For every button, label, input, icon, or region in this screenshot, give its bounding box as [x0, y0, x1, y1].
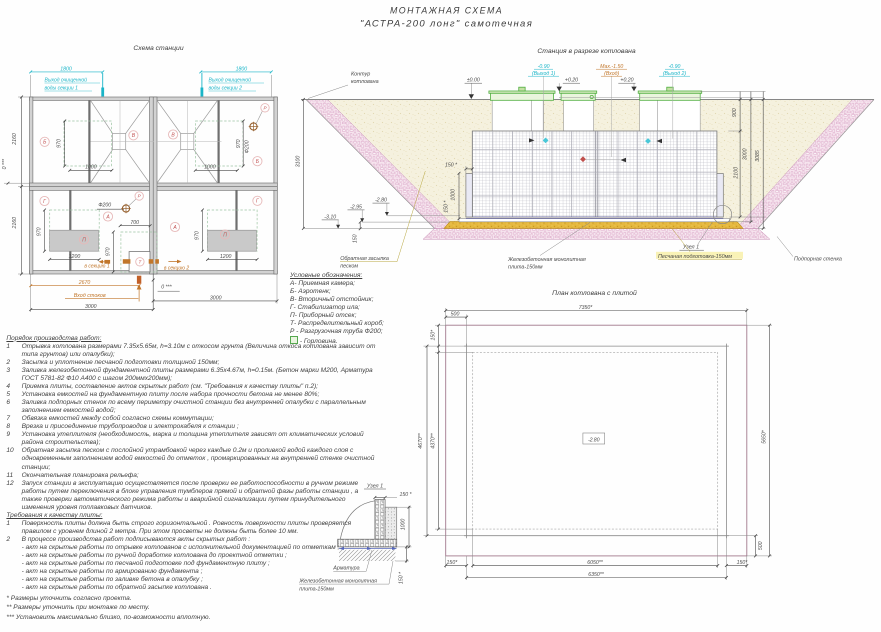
svg-text:План котлована с плитой: План котлована с плитой — [552, 289, 637, 297]
svg-text:Песчаная подготовка-150мм: Песчаная подготовка-150мм — [658, 254, 732, 260]
svg-text:3000: 3000 — [743, 148, 749, 160]
svg-text:970: 970 — [236, 139, 242, 148]
svg-text:7350*: 7350* — [579, 305, 594, 311]
svg-text:"АСТРА-200 лонг" самотечная: "АСТРА-200 лонг" самотечная — [360, 19, 533, 30]
svg-text:150*: 150* — [447, 560, 459, 566]
svg-text:970: 970 — [194, 231, 200, 240]
svg-text:2100: 2100 — [734, 167, 740, 180]
svg-text:1000: 1000 — [204, 165, 216, 171]
svg-text:6050**: 6050** — [587, 560, 604, 566]
svg-text:воды секции 1: воды секции 1 — [45, 85, 79, 91]
svg-text:Железобетонная монолитная: Железобетонная монолитная — [507, 257, 586, 263]
svg-text:500: 500 — [758, 541, 764, 550]
svg-text:1000: 1000 — [401, 519, 407, 531]
svg-text:150 *: 150 * — [399, 492, 412, 498]
svg-text:970: 970 — [56, 139, 62, 148]
svg-text:(Вход): (Вход) — [604, 71, 619, 77]
svg-text:+0.20: +0.20 — [565, 78, 578, 84]
svg-text:Выход очищенной: Выход очищенной — [45, 76, 88, 83]
svg-text:150*: 150* — [430, 329, 436, 341]
svg-text:900: 900 — [732, 108, 738, 117]
svg-text:песком: песком — [340, 263, 358, 269]
svg-text:-3.10: -3.10 — [324, 214, 336, 220]
svg-text:500: 500 — [451, 312, 460, 318]
svg-text:±0.00: ±0.00 — [467, 78, 480, 84]
svg-text:Станция в разрезе котлована: Станция в разрезе котлована — [537, 48, 635, 55]
svg-text:-2.95: -2.95 — [350, 204, 362, 210]
svg-text:2160: 2160 — [12, 133, 18, 146]
svg-text:-0.90: -0.90 — [538, 64, 550, 70]
svg-text:Вход стоков: Вход стоков — [74, 293, 106, 299]
svg-text:плита-150мм: плита-150мм — [508, 264, 543, 270]
svg-text:2160: 2160 — [12, 217, 18, 230]
svg-text:3085: 3085 — [755, 150, 761, 162]
svg-text:(Выход 2): (Выход 2) — [663, 71, 687, 77]
svg-text:Подпорная стенка: Подпорная стенка — [794, 256, 842, 262]
svg-text:3000: 3000 — [85, 304, 97, 310]
svg-text:1800: 1800 — [60, 66, 72, 72]
svg-text:3000: 3000 — [210, 295, 222, 301]
svg-text:1000: 1000 — [85, 165, 97, 171]
svg-text:котлована: котлована — [351, 79, 379, 85]
svg-text:+0.20: +0.20 — [620, 78, 633, 84]
svg-text:700: 700 — [130, 220, 139, 226]
svg-text:150 *: 150 * — [445, 162, 458, 168]
svg-text:1000: 1000 — [451, 189, 457, 201]
svg-text:-2.80: -2.80 — [375, 198, 387, 204]
svg-text:Ф200: Ф200 — [98, 202, 111, 208]
svg-text:-0.90: -0.90 — [669, 64, 681, 70]
svg-text:Выход очищенной: Выход очищенной — [209, 76, 252, 83]
svg-text:в секцию 2: в секцию 2 — [164, 266, 189, 272]
svg-text:П: П — [223, 232, 227, 238]
svg-text:А: А — [105, 214, 110, 220]
svg-text:1200: 1200 — [69, 254, 81, 260]
svg-text:в секцию 1: в секцию 1 — [84, 264, 109, 270]
svg-text:-2.80: -2.80 — [588, 437, 600, 443]
svg-text:Обратная засыпка: Обратная засыпка — [340, 256, 389, 262]
svg-text:150*: 150* — [737, 560, 749, 566]
svg-text:2670: 2670 — [78, 280, 91, 286]
svg-text:970: 970 — [37, 227, 43, 236]
svg-text:Схема станции: Схема станции — [133, 45, 183, 52]
svg-text:0 ***: 0 *** — [161, 285, 172, 291]
svg-text:0 ***: 0 *** — [2, 158, 8, 169]
svg-text:150 *: 150 * — [443, 200, 449, 213]
svg-text:970: 970 — [105, 247, 111, 256]
svg-text:Контур: Контур — [351, 72, 370, 78]
svg-text:П: П — [82, 237, 86, 243]
svg-text:Ф200: Ф200 — [245, 140, 251, 153]
svg-text:Мах.-1.50: Мах.-1.50 — [600, 64, 623, 70]
svg-text:3100: 3100 — [296, 156, 302, 168]
svg-text:(Выход 1): (Выход 1) — [532, 71, 556, 77]
svg-text:МОНТАЖНАЯ СХЕМА: МОНТАЖНАЯ СХЕМА — [390, 6, 503, 16]
svg-text:150: 150 — [352, 234, 358, 243]
svg-text:воды секции 2: воды секции 2 — [209, 85, 243, 91]
svg-text:Узел 1: Узел 1 — [682, 245, 699, 251]
svg-text:4670**: 4670** — [418, 432, 424, 449]
svg-text:150 *: 150 * — [398, 571, 404, 584]
svg-text:5650*: 5650* — [761, 429, 767, 444]
svg-text:1800: 1800 — [236, 66, 248, 72]
svg-text:А: А — [172, 225, 177, 231]
svg-text:6350**: 6350** — [588, 572, 605, 578]
svg-text:4370**: 4370** — [430, 432, 436, 449]
svg-text:1200: 1200 — [220, 254, 232, 260]
